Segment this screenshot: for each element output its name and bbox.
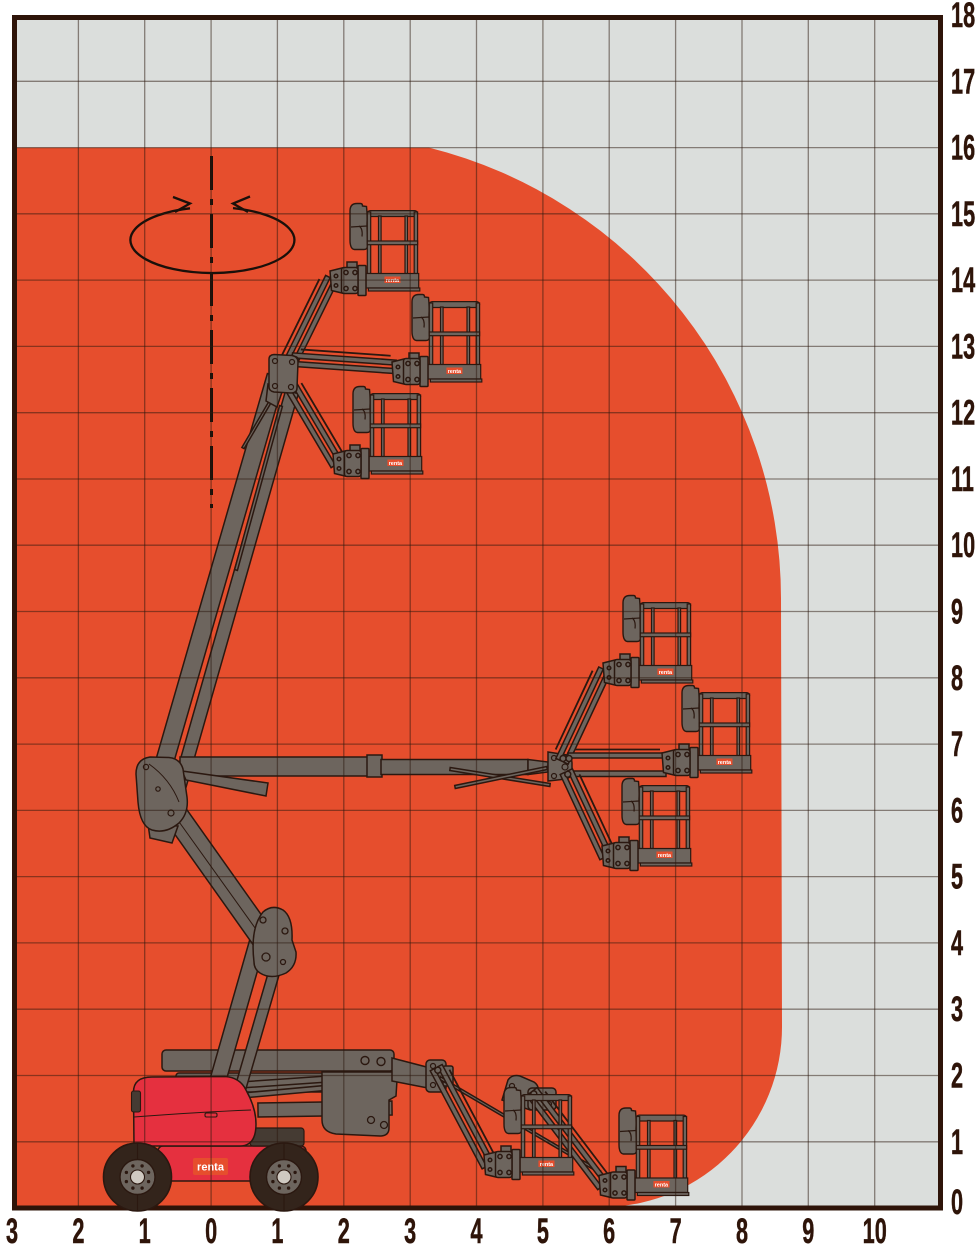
svg-text:0: 0: [205, 1213, 217, 1250]
svg-text:16: 16: [951, 130, 975, 168]
svg-text:3: 3: [6, 1213, 18, 1250]
svg-text:4: 4: [951, 925, 964, 963]
svg-text:renta: renta: [658, 853, 672, 859]
svg-text:12: 12: [951, 395, 975, 433]
svg-text:17: 17: [951, 63, 975, 101]
svg-text:3: 3: [951, 991, 963, 1029]
svg-text:9: 9: [951, 593, 963, 631]
svg-text:renta: renta: [389, 461, 403, 467]
svg-text:3: 3: [404, 1213, 416, 1250]
svg-text:10: 10: [863, 1213, 887, 1250]
svg-text:renta: renta: [386, 278, 400, 284]
svg-text:renta: renta: [540, 1162, 554, 1168]
svg-text:14: 14: [951, 262, 976, 300]
svg-text:5: 5: [951, 859, 963, 897]
svg-text:15: 15: [951, 196, 975, 234]
svg-text:13: 13: [951, 328, 975, 366]
svg-text:renta: renta: [718, 760, 732, 766]
svg-text:renta: renta: [448, 369, 462, 375]
svg-text:8: 8: [736, 1213, 748, 1250]
svg-text:9: 9: [802, 1213, 814, 1250]
svg-text:8: 8: [951, 660, 963, 698]
svg-text:2: 2: [951, 1057, 963, 1095]
svg-text:18: 18: [951, 0, 975, 35]
svg-text:renta: renta: [659, 670, 673, 676]
svg-text:renta: renta: [655, 1183, 669, 1189]
svg-text:10: 10: [951, 527, 975, 565]
svg-text:7: 7: [670, 1213, 682, 1250]
svg-text:1: 1: [271, 1213, 283, 1250]
svg-text:2: 2: [338, 1213, 350, 1250]
svg-text:1: 1: [139, 1213, 151, 1250]
svg-text:6: 6: [951, 792, 963, 830]
svg-text:7: 7: [951, 726, 963, 764]
svg-text:1: 1: [951, 1124, 963, 1162]
svg-text:6: 6: [603, 1213, 615, 1250]
svg-text:0: 0: [951, 1184, 963, 1222]
svg-text:4: 4: [470, 1213, 483, 1250]
svg-text:5: 5: [537, 1213, 549, 1250]
svg-text:2: 2: [72, 1213, 84, 1250]
svg-text:11: 11: [951, 461, 974, 499]
